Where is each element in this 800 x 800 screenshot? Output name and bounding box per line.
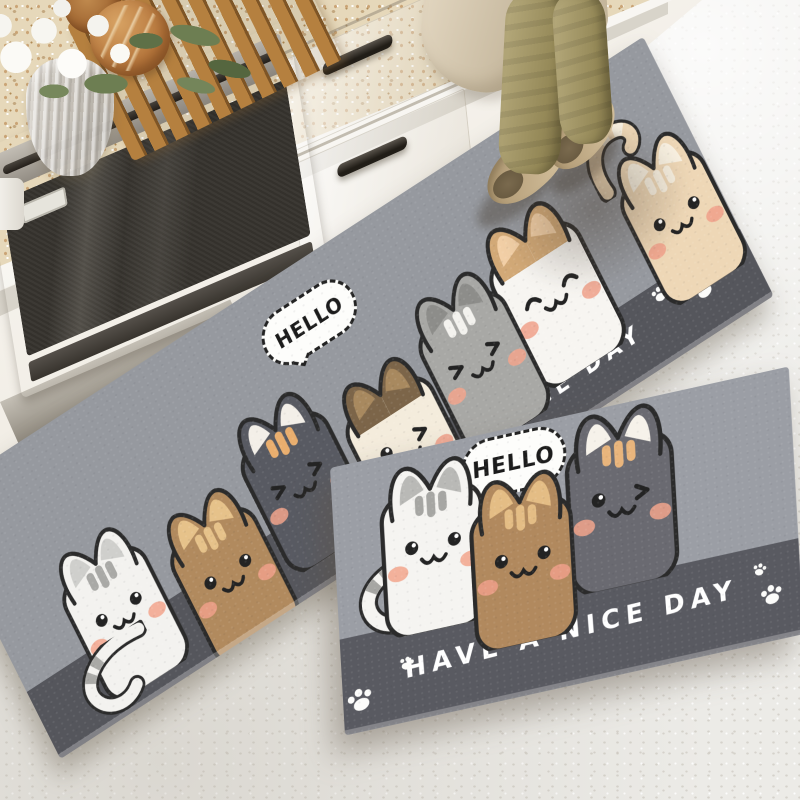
paw-print-icon — [750, 561, 768, 581]
person-standing — [0, 0, 800, 300]
kitchen-scene: HAVE A NICE DAY HELLO — [0, 0, 800, 800]
brown-tabby-cat — [462, 455, 583, 655]
right-leg — [551, 0, 614, 146]
